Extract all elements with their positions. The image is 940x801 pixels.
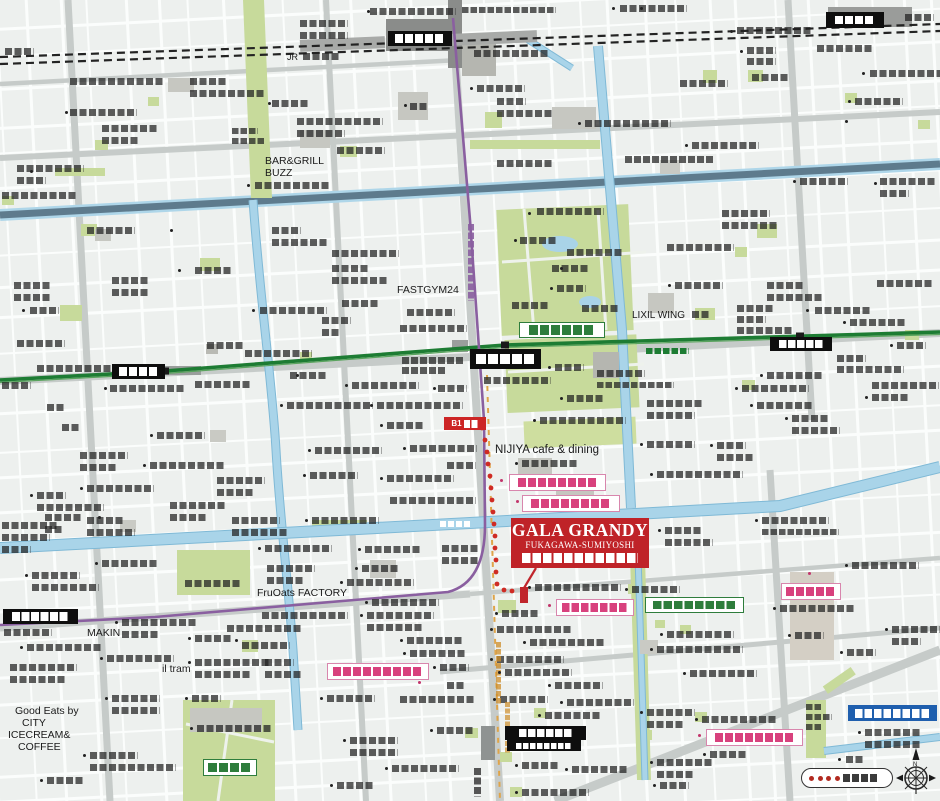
svg-text:N: N xyxy=(913,762,917,768)
